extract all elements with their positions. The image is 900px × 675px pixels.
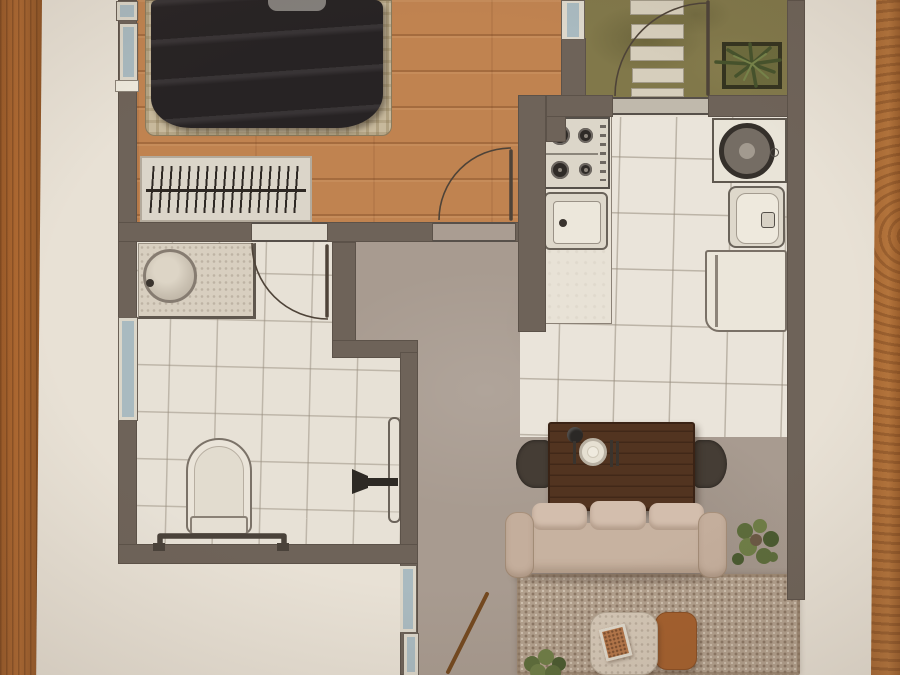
dining-chair-left [516,440,550,488]
wood-plank-left [0,0,42,675]
bedroom-door-threshold [433,222,515,242]
wall-right-exterior [787,0,805,600]
faucet-dot [559,219,567,227]
washing-machine [712,118,787,183]
kitchen-sink-right [728,186,785,248]
stepping-stone [631,24,684,39]
sofa-back-cushion [649,503,704,530]
stepping-stone [631,88,684,97]
cutlery-knife [610,440,613,467]
burner [578,128,593,143]
faucet [761,212,775,228]
window-sill [115,80,139,92]
burner [579,163,592,176]
wall-bedroom-bathroom-left [118,222,252,242]
bathroom-door-threshold [252,222,327,242]
duvet [151,0,383,128]
window [117,2,137,20]
hob-controls [600,125,606,181]
window [120,24,137,80]
entry-threshold [613,97,708,115]
fridge-handle [715,255,718,327]
wall-kitchen-divider [518,95,546,332]
stepping-stone [630,46,684,61]
kitchen-sink [544,192,608,250]
wood-plank-right [871,0,900,675]
vanity-faucet [146,279,154,287]
wall-bathroom-hall [332,242,356,344]
wardrobe-rail [146,189,306,192]
vanity-basin [143,249,197,303]
sofa-back-cushion [532,503,587,530]
dinner-plate [579,438,607,466]
window [400,566,416,632]
refrigerator [705,250,787,332]
wall-hall-left [400,352,418,568]
wall-kitchen-top-left [546,95,613,117]
plate-center [587,446,599,458]
sofa-armrest-right [698,512,727,578]
sofa-armrest-left [505,512,534,578]
window-bedroom-right-frame [561,0,585,40]
toilet-seat [194,446,244,524]
washer-drum [719,123,775,179]
agave-planter [722,42,782,89]
coffee-table-orange [655,612,697,670]
wardrobe [140,156,312,222]
cutlery-spoon [616,441,619,466]
hob-divider [546,153,598,155]
sofa [506,503,726,577]
wall-bedroom-bathroom-right [327,222,433,242]
wall-bedroom-right [561,38,586,100]
stepping-stone [632,68,684,83]
washer-knob [770,148,779,157]
toilet-tank [190,516,248,535]
floor-plan-photo: { "meta": { "kind": "photographed apartm… [0,0,900,675]
window [119,318,137,420]
window-glass [567,3,579,37]
burner [551,161,569,179]
stepping-stone [630,0,684,15]
sofa-back-cushion [590,501,646,530]
bed-sheet-fold [268,0,326,11]
sofa-seat [528,523,704,573]
paper-margin-bottom-left [40,564,400,675]
wall-bathroom-bottom [118,544,418,564]
cutlery-fork [573,441,576,464]
window [404,634,418,675]
washer-hub [739,143,755,159]
